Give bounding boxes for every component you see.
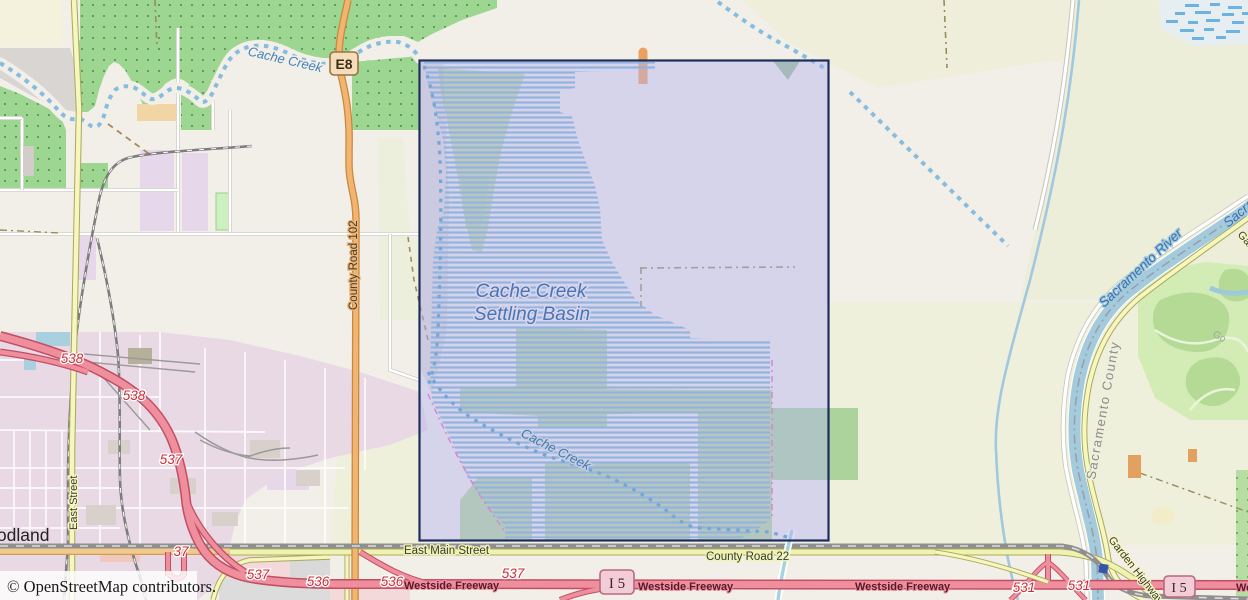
svg-text:East Main Street: East Main Street — [404, 545, 490, 557]
svg-text:37: 37 — [173, 544, 189, 559]
svg-text:538: 538 — [123, 388, 146, 403]
svg-text:536: 536 — [307, 574, 330, 589]
svg-text:E8: E8 — [335, 56, 352, 72]
svg-text:537: 537 — [502, 566, 525, 581]
svg-text:537: 537 — [160, 452, 183, 467]
svg-text:East Street: East Street — [68, 476, 80, 530]
svg-text:I 5: I 5 — [1171, 581, 1186, 596]
svg-text:We: We — [1236, 582, 1248, 594]
svg-text:531: 531 — [1068, 578, 1091, 593]
svg-text:Westside Freeway: Westside Freeway — [855, 581, 951, 593]
svg-text:537: 537 — [247, 567, 270, 582]
svg-text:Westside Freeway: Westside Freeway — [404, 580, 500, 592]
svg-text:536: 536 — [381, 574, 404, 589]
svg-text:538: 538 — [61, 351, 84, 366]
svg-text:531: 531 — [1013, 580, 1036, 595]
svg-text:Settling Basin: Settling Basin — [474, 304, 590, 325]
svg-text:I 5: I 5 — [609, 576, 625, 592]
svg-text:© OpenStreetMap contributors.: © OpenStreetMap contributors. — [7, 577, 216, 596]
svg-text:Westside Freeway: Westside Freeway — [638, 581, 734, 593]
svg-text:County Road 22: County Road 22 — [706, 551, 789, 563]
svg-text:Woodland: Woodland — [0, 525, 50, 545]
svg-text:Cache Creek: Cache Creek — [476, 281, 588, 302]
svg-text:County Road 102: County Road 102 — [348, 220, 360, 310]
